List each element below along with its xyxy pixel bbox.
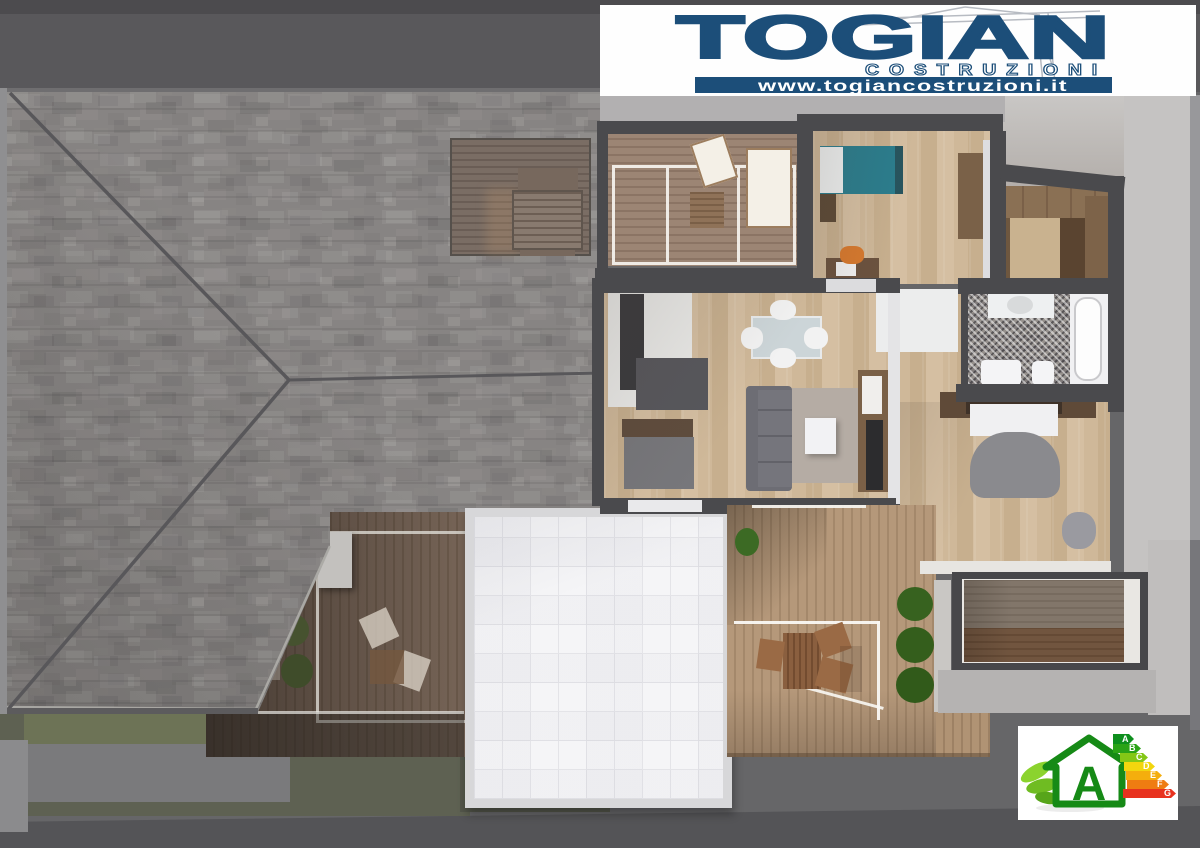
svg-text:F: F — [1157, 779, 1163, 789]
svg-text:D: D — [1143, 761, 1150, 771]
svg-text:E: E — [1150, 770, 1156, 780]
svg-text:A: A — [1122, 734, 1129, 744]
svg-text:A: A — [1072, 758, 1107, 811]
svg-text:G: G — [1164, 788, 1171, 798]
svg-text:COSTRUZIONI: COSTRUZIONI — [865, 62, 1107, 79]
svg-text:www.togiancostruzioni.it: www.togiancostruzioni.it — [757, 78, 1068, 95]
svg-text:C: C — [1136, 752, 1143, 762]
svg-text:B: B — [1129, 743, 1136, 753]
